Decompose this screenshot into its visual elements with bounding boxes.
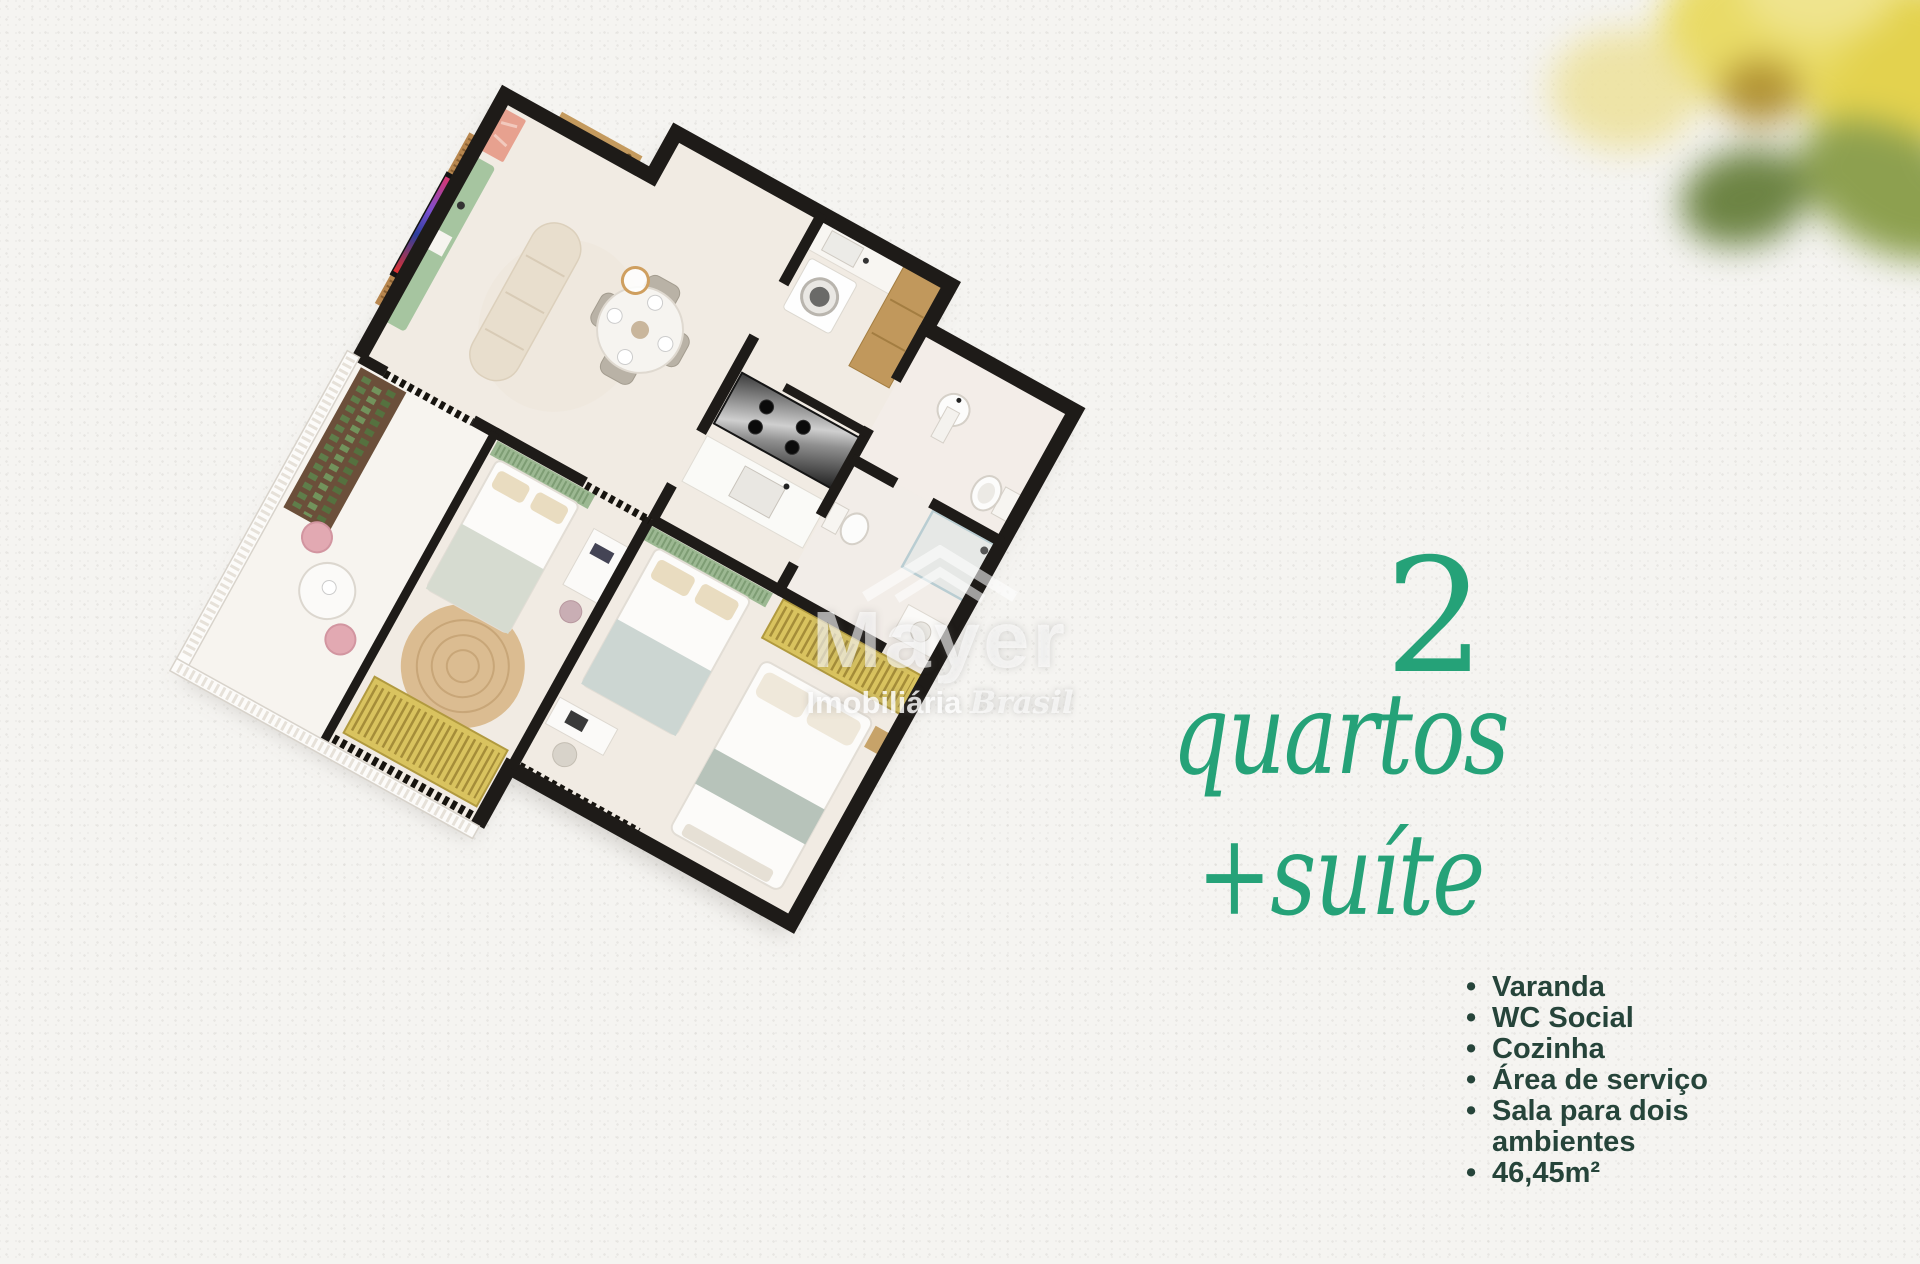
feature-item-sala: Sala para dois ambientes (1466, 1096, 1736, 1158)
marketing-slide: Mayer Imobiliária Brasil 2 quartos +suít… (0, 0, 1920, 1264)
feature-item-wc-social: WC Social (1466, 1003, 1736, 1034)
feature-label: Área de serviço (1492, 1064, 1708, 1096)
headline-word2: +suíte (1030, 820, 1650, 932)
headline-word1-text: quartos (1172, 679, 1508, 791)
feature-label: Sala para dois ambientes (1492, 1095, 1689, 1158)
feature-item-area-servico: Área de serviço (1466, 1065, 1736, 1096)
headline-word2-text: +suíte (1197, 820, 1484, 932)
feature-item-area-total: 46,45m² (1466, 1158, 1736, 1189)
feature-label: WC Social (1492, 1002, 1634, 1034)
feature-list: Varanda WC Social Cozinha Área de serviç… (1466, 972, 1736, 1189)
feature-label: Cozinha (1492, 1033, 1605, 1065)
headline-word1: quartos (1030, 679, 1650, 791)
feature-label: 46,45m² (1492, 1157, 1600, 1189)
feature-item-varanda: Varanda (1466, 972, 1736, 1003)
feature-label: Varanda (1492, 971, 1605, 1003)
feature-item-cozinha: Cozinha (1466, 1034, 1736, 1065)
